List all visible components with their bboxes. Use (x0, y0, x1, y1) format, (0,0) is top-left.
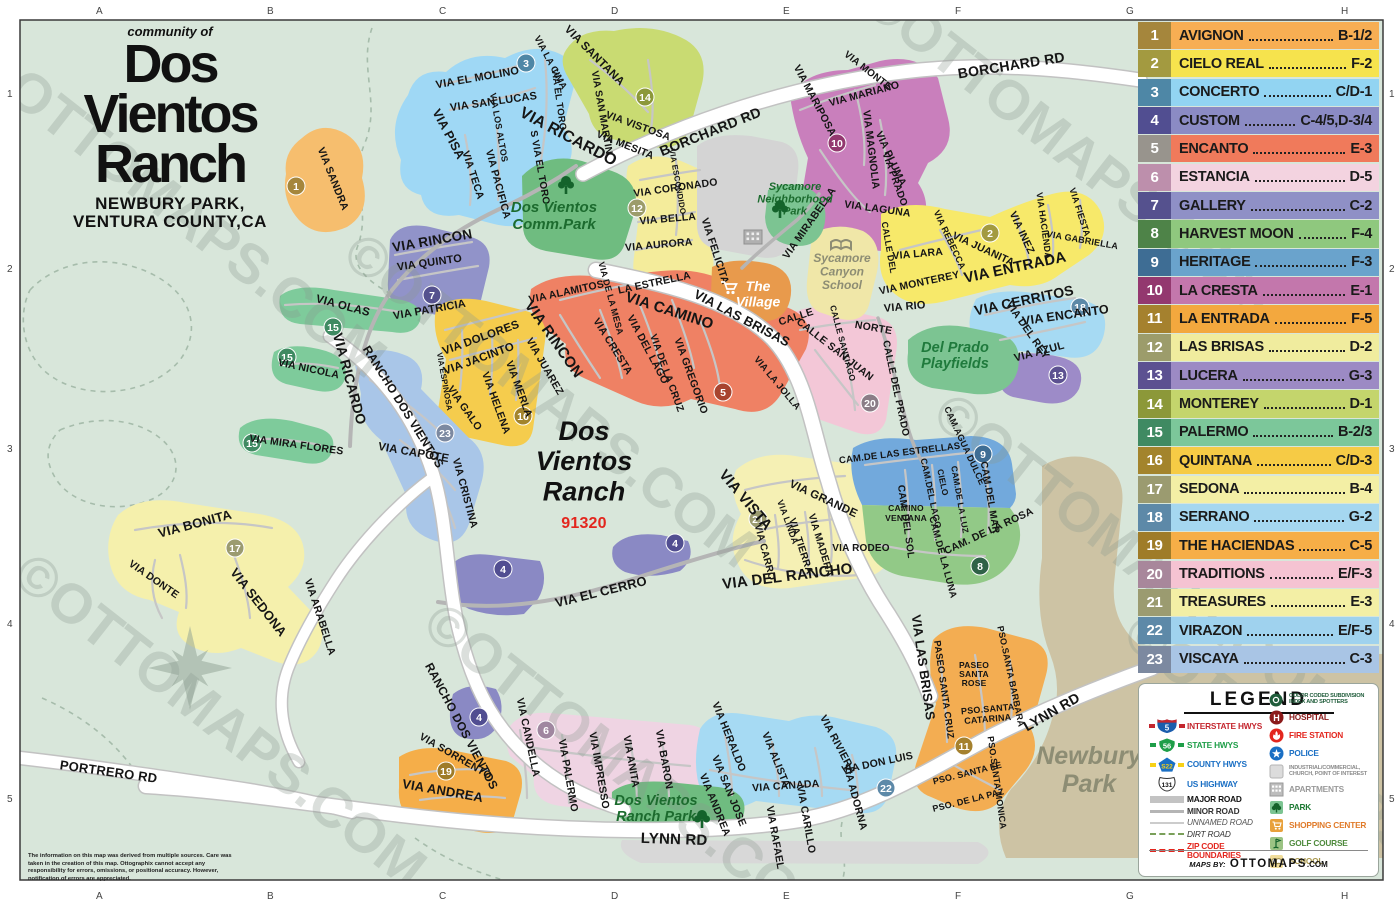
maps-by-credit: MAPS BY: OTTOMAPS.COM (1149, 850, 1368, 872)
index-number: 8 (1138, 220, 1171, 247)
index-grid-ref: E-3 (1350, 141, 1372, 157)
legend-item-dirt-road: DIRT ROAD (1147, 830, 1263, 839)
legend-item-state-hwys: 56STATE HWYS (1147, 737, 1263, 753)
legend-label: FIRE STATION (1289, 731, 1343, 740)
index-grid-ref: D-5 (1350, 169, 1372, 185)
legend-label: US HIGHWAY (1187, 780, 1238, 789)
grid-row-4-left: 4 (7, 619, 13, 630)
dotted-leader (1253, 152, 1345, 154)
index-grid-ref: C-5 (1350, 538, 1372, 554)
index-row-17: 17SEDONAB-4 (1138, 476, 1379, 503)
legend-label: HOSPITAL (1289, 713, 1329, 722)
index-grid-ref: F-3 (1351, 254, 1372, 270)
map-canvas: ©OTTOMAPS.COM©OTTOMAPS.COM©OTTOMAPS.COM©… (0, 0, 1400, 906)
legend-label: INTERSTATE HWYS (1187, 722, 1262, 731)
index-entry: VISCAYAC-3 (1171, 646, 1379, 673)
index-row-13: 13LUCERAG-3 (1138, 362, 1379, 389)
index-name: ESTANCIA (1179, 169, 1250, 185)
index-row-9: 9HERITAGEF-3 (1138, 249, 1379, 276)
index-grid-ref: F-4 (1351, 226, 1372, 242)
svg-text:131: 131 (1162, 782, 1173, 789)
unnamed-road-icon (1147, 822, 1187, 824)
dotted-leader (1271, 605, 1346, 607)
legend-label: MINOR ROAD (1187, 807, 1239, 816)
legend-label: STATE HWYS (1187, 741, 1238, 750)
svg-text:Dos Vientos: Dos Vientos (511, 199, 597, 216)
index-entry: LA ENTRADAF-5 (1171, 305, 1379, 332)
grid-row-1-right: 1 (1389, 89, 1395, 100)
dotted-leader (1245, 124, 1296, 126)
dotted-leader (1264, 95, 1330, 97)
index-entry: CUSTOMC-4/5,D-3/4 (1171, 107, 1379, 134)
svg-text:Playfields: Playfields (921, 356, 989, 372)
street-label-rose: ROSE (962, 678, 987, 688)
spotter-14: 14 (636, 88, 654, 106)
svg-text:6: 6 (543, 725, 549, 737)
golf-icon (1267, 836, 1285, 851)
index-grid-ref: E-1 (1350, 283, 1372, 299)
dotted-leader (1255, 265, 1346, 267)
grid-col-B-bottom: B (267, 891, 274, 902)
legend-item-unnamed-road: UNNAMED ROAD (1147, 818, 1263, 827)
index-number: 16 (1138, 447, 1171, 474)
legend-label: GOLF COURSE (1289, 839, 1348, 848)
index-row-21: 21TREASURESE-3 (1138, 589, 1379, 616)
index-grid-ref: E-3 (1350, 594, 1372, 610)
credit-brand: OTTOMAPS (1230, 858, 1307, 870)
index-row-15: 15PALERMOB-2/3 (1138, 419, 1379, 446)
legend-label: APARTMENTS (1289, 785, 1344, 794)
dotted-leader (1269, 350, 1345, 352)
svg-text:Park: Park (1062, 770, 1117, 798)
index-number: 19 (1138, 532, 1171, 559)
svg-text:4: 4 (672, 538, 678, 550)
legend-item-fire: FIRE STATION (1267, 728, 1377, 743)
legend-label: INDUSTRIAL/COMMERCIAL, CHURCH, POINT OF … (1289, 766, 1377, 778)
grid-col-E-bottom: E (783, 891, 790, 902)
spotter-3: 3 (517, 54, 535, 72)
index-name: TRADITIONS (1179, 566, 1265, 582)
dotted-leader (1247, 634, 1333, 636)
index-number: 9 (1138, 249, 1171, 276)
index-number: 18 (1138, 504, 1171, 531)
legend-item-us-hwys: 131US HIGHWAY (1147, 776, 1263, 792)
index-grid-ref: F-2 (1351, 56, 1372, 72)
grid-row-4-right: 4 (1389, 619, 1395, 630)
index-row-2: 2CIELO REALF-2 (1138, 50, 1379, 77)
index-entry: CIELO REALF-2 (1171, 50, 1379, 77)
index-row-4: 4CUSTOMC-4/5,D-3/4 (1138, 107, 1379, 134)
index-grid-ref: E/F-5 (1338, 623, 1372, 639)
map-title-line2: Vientos (30, 89, 310, 139)
legend-left-column: 5INTERSTATE HWYS56STATE HWYSS22COUNTY HW… (1147, 718, 1263, 862)
grid-row-5-right: 5 (1389, 794, 1395, 805)
dotted-leader (1257, 464, 1331, 466)
dotted-leader (1269, 67, 1346, 69)
dotted-leader (1244, 492, 1344, 494)
disclaimer-text: The information on this map was derived … (28, 853, 236, 883)
us-shield-icon: 131 (1147, 776, 1187, 792)
grid-col-C-top: C (439, 6, 446, 17)
map-subtitle-county: VENTURA COUNTY,CA (30, 213, 310, 231)
grid-col-B-top: B (267, 6, 274, 17)
grid-col-G-bottom: G (1126, 891, 1134, 902)
index-name: THE HACIENDAS (1179, 538, 1294, 554)
index-name: CIELO REAL (1179, 56, 1264, 72)
index-name: QUINTANA (1179, 453, 1252, 469)
index-grid-ref: D-1 (1350, 396, 1372, 412)
svg-text:13: 13 (1052, 370, 1064, 382)
legend-label: SHOPPING CENTER (1289, 821, 1366, 830)
dotted-leader (1243, 379, 1344, 381)
index-grid-ref: E/F-3 (1338, 566, 1372, 582)
index-row-19: 19THE HACIENDASC-5 (1138, 532, 1379, 559)
legend-item-shopping: SHOPPING CENTER (1267, 818, 1377, 833)
index-number: 13 (1138, 362, 1171, 389)
svg-text:H: H (1273, 713, 1280, 723)
fire-icon (1267, 728, 1285, 743)
legend-item-industrial: INDUSTRIAL/COMMERCIAL, CHURCH, POINT OF … (1267, 764, 1377, 779)
index-row-7: 7GALLERYC-2 (1138, 192, 1379, 219)
index-number: 12 (1138, 334, 1171, 361)
index-grid-ref: B-4 (1350, 481, 1372, 497)
index-name: LAS BRISAS (1179, 339, 1264, 355)
police-icon (1267, 746, 1285, 761)
index-row-11: 11LA ENTRADAF-5 (1138, 305, 1379, 332)
svg-text:9: 9 (980, 449, 986, 461)
index-name: LA CRESTA (1179, 283, 1258, 299)
index-number: 11 (1138, 305, 1171, 332)
index-entry: PALERMOB-2/3 (1171, 419, 1379, 446)
legend-label: UNNAMED ROAD (1187, 818, 1253, 827)
street-label-via-rodeo: VIA RODEO (832, 543, 890, 554)
interstate-shield-icon: 5 (1147, 718, 1187, 734)
svg-text:Ranch: Ranch (543, 476, 626, 506)
index-name: LA ENTRADA (1179, 311, 1270, 327)
area-label-del-prado-playfields: Del PradoPlayfields (921, 340, 989, 372)
hospital-icon: H (1267, 710, 1285, 725)
index-row-20: 20TRADITIONSE/F-3 (1138, 561, 1379, 588)
index-row-5: 5ENCANTOE-3 (1138, 135, 1379, 162)
index-row-1: 1AVIGNONB-1/2 (1138, 22, 1379, 49)
svg-text:Vientos: Vientos (536, 446, 633, 476)
grid-col-F-top: F (955, 6, 961, 17)
spotter-13: 13 (1049, 366, 1067, 384)
index-name: HERITAGE (1179, 254, 1250, 270)
index-row-3: 3CONCERTOC/D-1 (1138, 79, 1379, 106)
grid-col-A-top: A (96, 6, 103, 17)
index-name: PALERMO (1179, 424, 1248, 440)
svg-text:22: 22 (880, 783, 892, 795)
dotted-leader (1254, 520, 1343, 522)
spotter-20: 20 (861, 394, 879, 412)
legend-label: MAJOR ROAD (1187, 795, 1242, 804)
county-shield-icon: S22 (1147, 756, 1187, 773)
title-block: community of Dos Vientos Ranch NEWBURY P… (30, 24, 310, 230)
svg-text:Canyon: Canyon (820, 264, 864, 278)
svg-text:S22: S22 (1161, 764, 1173, 771)
index-number: 7 (1138, 192, 1171, 219)
index-entry: ESTANCIAD-5 (1171, 164, 1379, 191)
index-number: 2 (1138, 50, 1171, 77)
svg-text:12: 12 (631, 203, 643, 215)
index-number: 21 (1138, 589, 1171, 616)
legend-label: COLOR CODED SUBDIVISION INDEX AND SPOTTE… (1289, 694, 1377, 706)
legend-item-county-hwys: S22COUNTY HWYS (1147, 756, 1263, 773)
svg-text:23: 23 (439, 428, 451, 440)
index-grid-ref: F-5 (1351, 311, 1372, 327)
index-row-6: 6ESTANCIAD-5 (1138, 164, 1379, 191)
index-number: 4 (1138, 107, 1171, 134)
index-grid-ref: D-2 (1350, 339, 1372, 355)
index-name: LUCERA (1179, 368, 1238, 384)
svg-text:4: 4 (500, 564, 506, 576)
index-grid-ref: G-2 (1349, 509, 1372, 525)
index-grid-ref: C-2 (1350, 198, 1372, 214)
index-name: VIRAZON (1179, 623, 1242, 639)
svg-text:8: 8 (977, 561, 983, 573)
grid-col-E-top: E (783, 6, 790, 17)
legend-label: PARK (1289, 803, 1311, 812)
major-road-icon (1147, 796, 1187, 803)
spotter-2: 2 (981, 224, 999, 242)
index-row-8: 8HARVEST MOONF-4 (1138, 220, 1379, 247)
dotted-leader (1263, 294, 1346, 296)
index-entry: HARVEST MOONF-4 (1171, 220, 1379, 247)
index-grid-ref: B-2/3 (1338, 424, 1372, 440)
svg-text:5: 5 (720, 387, 726, 399)
svg-text:10: 10 (831, 138, 843, 150)
svg-text:20: 20 (864, 398, 876, 410)
legend-item-minor-road: MINOR ROAD (1147, 807, 1263, 816)
grid-row-2-left: 2 (7, 264, 13, 275)
index-grid-ref: B-1/2 (1338, 28, 1372, 44)
index-number: 1 (1138, 22, 1171, 49)
index-entry: TREASURESE-3 (1171, 589, 1379, 616)
dotted-leader (1299, 549, 1344, 551)
grid-col-F-bottom: F (955, 891, 961, 902)
area-label-dos-vientos-ranch-park: Dos VientosRanch Park (614, 793, 697, 825)
svg-text:Dos: Dos (558, 416, 609, 446)
grid-row-1-left: 1 (7, 89, 13, 100)
dotted-leader (1249, 39, 1334, 41)
index-grid-ref: C-4/5,D-3/4 (1300, 113, 1372, 129)
spotter-7: 7 (423, 286, 441, 304)
svg-text:56: 56 (1163, 742, 1171, 751)
grid-row-3-left: 3 (7, 444, 13, 455)
spotter-5: 5 (714, 383, 732, 401)
dotted-leader (1270, 577, 1333, 579)
legend-box: LEGEND 5INTERSTATE HWYS56STATE HWYSS22CO… (1138, 683, 1379, 877)
grid-col-G-top: G (1126, 6, 1134, 17)
legend-item-major-road: MAJOR ROAD (1147, 795, 1263, 804)
legend-label: COUNTY HWYS (1187, 760, 1247, 769)
grid-row-5-left: 5 (7, 794, 13, 805)
index-row-14: 14MONTEREYD-1 (1138, 390, 1379, 417)
credit-prefix: MAPS BY: (1189, 860, 1225, 869)
index-entry: SERRANOG-2 (1171, 504, 1379, 531)
index-entry: TRADITIONSE/F-3 (1171, 561, 1379, 588)
svg-text:The: The (746, 278, 771, 294)
index-number: 3 (1138, 79, 1171, 106)
index-grid-ref: C-3 (1350, 651, 1372, 667)
svg-text:14: 14 (639, 92, 651, 104)
legend-item-police: POLICE (1267, 746, 1377, 761)
svg-text:5: 5 (1165, 724, 1170, 733)
spotter-17: 17 (226, 539, 244, 557)
legend-right-column: COLOR CODED SUBDIVISION INDEX AND SPOTTE… (1267, 693, 1377, 872)
svg-text:17: 17 (229, 543, 241, 555)
index-entry: THE HACIENDASC-5 (1171, 532, 1379, 559)
index-entry: HERITAGEF-3 (1171, 249, 1379, 276)
map-subtitle-city: NEWBURY PARK, (30, 195, 310, 213)
index-name: HARVEST MOON (1179, 226, 1294, 242)
index-entry: ENCANTOE-3 (1171, 135, 1379, 162)
index-name: SEDONA (1179, 481, 1239, 497)
index-number: 20 (1138, 561, 1171, 588)
svg-text:Dos Vientos: Dos Vientos (614, 793, 697, 809)
index-entry: QUINTANAC/D-3 (1171, 447, 1379, 474)
index-grid-ref: G-3 (1349, 368, 1372, 384)
minor-road-icon (1147, 810, 1187, 813)
index-entry: GALLERYC-2 (1171, 192, 1379, 219)
svg-text:3: 3 (523, 58, 529, 70)
index-number: 22 (1138, 617, 1171, 644)
index-name: AVIGNON (1179, 28, 1244, 44)
legend-item-golf: GOLF COURSE (1267, 836, 1377, 851)
svg-text:Comm.Park: Comm.Park (512, 216, 596, 233)
street-label-ventana: VENTANA (885, 513, 927, 523)
svg-text:Newbury: Newbury (1036, 742, 1143, 770)
spotter-8: 8 (971, 557, 989, 575)
spotter-23: 23 (436, 424, 454, 442)
dotted-leader (1275, 322, 1346, 324)
dotted-leader (1255, 180, 1345, 182)
spotter-4: 4 (470, 708, 488, 726)
index-number: 17 (1138, 476, 1171, 503)
index-grid-ref: C/D-3 (1336, 453, 1372, 469)
dotted-leader (1244, 662, 1345, 664)
state-shield-icon: 56 (1147, 737, 1187, 753)
index-name: MONTEREY (1179, 396, 1259, 412)
street-label-lynn-rd: LYNN RD (641, 830, 708, 849)
index-entry: MONTEREYD-1 (1171, 390, 1379, 417)
index-name: VISCAYA (1179, 651, 1239, 667)
credit-suffix: .COM (1307, 860, 1328, 869)
index-row-16: 16QUINTANAC/D-3 (1138, 447, 1379, 474)
park-icon (1267, 800, 1285, 815)
index-number: 10 (1138, 277, 1171, 304)
legend-label: DIRT ROAD (1187, 830, 1231, 839)
index-row-10: 10LA CRESTAE-1 (1138, 277, 1379, 304)
dotted-leader (1253, 435, 1333, 437)
street-label-camino: CAMINO (888, 503, 924, 513)
legend-label: POLICE (1289, 749, 1319, 758)
subdivision-index: 1AVIGNONB-1/22CIELO REALF-23CONCERTOC/D-… (1138, 22, 1379, 674)
grid-col-D-bottom: D (611, 891, 618, 902)
index-entry: LA CRESTAE-1 (1171, 277, 1379, 304)
grid-col-C-bottom: C (439, 891, 446, 902)
dotted-leader (1251, 209, 1345, 211)
dirt-road-icon (1147, 833, 1187, 835)
area-label-dos-vientos-comm-park: Dos VientosComm.Park (511, 199, 597, 233)
svg-text:Neighborhood: Neighborhood (757, 193, 832, 205)
svg-text:Village: Village (736, 294, 781, 310)
svg-text:Ranch Park: Ranch Park (616, 809, 697, 825)
index-entry: SEDONAB-4 (1171, 476, 1379, 503)
grid-col-H-top: H (1341, 6, 1348, 17)
spotter-circle-icon (1267, 693, 1285, 707)
legend-item-park: PARK (1267, 800, 1377, 815)
index-number: 5 (1138, 135, 1171, 162)
dotted-leader (1264, 407, 1345, 409)
index-entry: AVIGNONB-1/2 (1171, 22, 1379, 49)
svg-text:Del Prado: Del Prado (921, 340, 989, 356)
index-name: ENCANTO (1179, 141, 1248, 157)
grid-col-D-top: D (611, 6, 618, 17)
svg-text:2: 2 (987, 228, 993, 240)
index-row-22: 22VIRAZONE/F-5 (1138, 617, 1379, 644)
svg-text:11: 11 (958, 741, 969, 753)
index-number: 6 (1138, 164, 1171, 191)
index-name: CONCERTO (1179, 84, 1259, 100)
legend-item-interstate-hwys: 5INTERSTATE HWYS (1147, 718, 1263, 734)
index-number: 23 (1138, 646, 1171, 673)
index-entry: LUCERAG-3 (1171, 362, 1379, 389)
industrial-icon (1267, 764, 1285, 779)
legend-item-hospital: HHOSPITAL (1267, 710, 1377, 725)
spotter-11: 11 (955, 737, 973, 755)
spotter-6: 6 (537, 721, 555, 739)
svg-text:4: 4 (476, 712, 482, 724)
svg-text:School: School (822, 278, 863, 292)
map-title-line1: Dos (30, 39, 310, 89)
index-number: 14 (1138, 390, 1171, 417)
spotter-22: 22 (877, 779, 895, 797)
spotter-4: 4 (494, 560, 512, 578)
grid-row-3-right: 3 (1389, 444, 1395, 455)
shopping-icon (1267, 818, 1285, 833)
street-label-91320: 91320 (561, 515, 607, 532)
index-entry: LAS BRISASD-2 (1171, 334, 1379, 361)
apartments-icon (744, 230, 762, 244)
index-row-23: 23VISCAYAC-3 (1138, 646, 1379, 673)
svg-text:19: 19 (440, 766, 452, 778)
index-entry: VIRAZONE/F-5 (1171, 617, 1379, 644)
svg-text:Sycamore: Sycamore (813, 251, 871, 265)
grid-row-2-right: 2 (1389, 264, 1395, 275)
map-title-line3: Ranch (30, 139, 310, 189)
legend-item-apartments: APARTMENTS (1267, 782, 1377, 797)
index-grid-ref: C/D-1 (1336, 84, 1372, 100)
svg-text:7: 7 (429, 290, 435, 302)
index-name: TREASURES (1179, 594, 1266, 610)
grid-col-H-bottom: H (1341, 891, 1348, 902)
index-row-12: 12LAS BRISASD-2 (1138, 334, 1379, 361)
index-entry: CONCERTOC/D-1 (1171, 79, 1379, 106)
index-name: SERRANO (1179, 509, 1249, 525)
index-name: CUSTOM (1179, 113, 1240, 129)
index-number: 15 (1138, 419, 1171, 446)
svg-text:15: 15 (327, 322, 339, 334)
dotted-leader (1299, 237, 1347, 239)
legend-item-spotter-circle: COLOR CODED SUBDIVISION INDEX AND SPOTTE… (1267, 693, 1377, 707)
spotter-19: 19 (437, 762, 455, 780)
grid-col-A-bottom: A (96, 891, 103, 902)
apartments-icon (1267, 782, 1285, 797)
index-name: GALLERY (1179, 198, 1246, 214)
spotter-4: 4 (666, 534, 684, 552)
